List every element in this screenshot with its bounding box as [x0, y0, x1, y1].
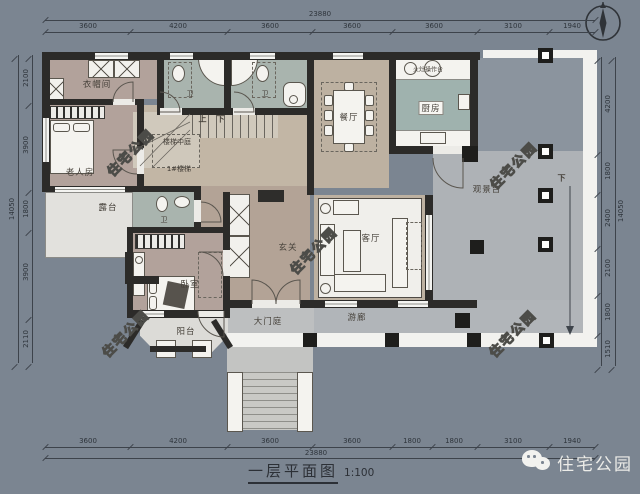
dim-tick [127, 29, 133, 35]
label-stair-down: 下 [217, 114, 226, 125]
north-arrow [586, 2, 620, 40]
deck-column [538, 188, 553, 203]
dim-line [45, 20, 595, 21]
deck-right-band [583, 50, 597, 347]
dining-chair [324, 125, 333, 136]
wall-bath1-left [157, 55, 164, 112]
label-deck-down: 下 [558, 173, 567, 184]
label-stair-up: 上 [199, 114, 208, 125]
dim-tick [546, 29, 552, 35]
dim-tick [474, 444, 480, 450]
dim-right-overall: 14050 [617, 200, 625, 222]
door-gap-cloakroom [113, 99, 135, 105]
dim-tick [11, 56, 17, 62]
deck-column [538, 237, 553, 252]
dim-tick [25, 230, 31, 236]
plant-icon [320, 283, 331, 294]
wall-bath1-bath2 [224, 55, 231, 112]
label-veranda: 游廊 [347, 311, 366, 323]
closet-hatch [48, 106, 105, 119]
door-gap-kitchen-deck [433, 146, 463, 154]
label-stair-id: 1#楼梯 [167, 164, 191, 174]
dim-tick [608, 367, 614, 373]
tv-console [258, 190, 284, 202]
dim-tick [25, 190, 31, 196]
drawing-title: 一层平面图 1:100 [248, 460, 374, 484]
dim-bottom-seg: 3100 [504, 437, 522, 445]
label-bath3: 卫 [161, 215, 168, 225]
terrace-floor [45, 192, 133, 258]
label-bedroom: 卧室 [180, 278, 199, 290]
dim-top-seg: 3600 [261, 22, 279, 30]
label-living: 客厅 [361, 232, 380, 244]
dim-bottom-seg: 1940 [563, 437, 581, 445]
dim-line [601, 57, 602, 366]
dim-left-seg: 3900 [22, 136, 30, 154]
dim-right-seg: 2100 [604, 259, 612, 277]
title-scale: 1:100 [344, 467, 374, 479]
entrance-steps [243, 372, 297, 430]
window-bath1 [170, 53, 193, 59]
corner-column [462, 146, 478, 162]
bedroom-dresser [135, 234, 185, 249]
dim-top-seg: 3600 [425, 22, 443, 30]
dim-bottom-seg: 1800 [445, 437, 463, 445]
sofa-bottom [334, 274, 386, 292]
steps-pedestal-left [227, 372, 243, 432]
dim-right-seg: 1510 [604, 340, 612, 358]
title-text: 一层平面图 [248, 460, 338, 484]
dim-line [18, 55, 19, 363]
dining-chair [344, 143, 354, 152]
dim-tick [592, 29, 598, 35]
window-dining [333, 53, 363, 59]
dim-tick [25, 56, 31, 62]
dim-line [45, 447, 595, 448]
door-gap-bath3 [194, 200, 201, 222]
bedroom-wardrobe [198, 252, 222, 298]
deck-column-solid [470, 240, 484, 254]
window-living-bay [426, 215, 432, 290]
dim-right-seg: 1800 [604, 303, 612, 321]
dim-top-overall: 23880 [309, 10, 331, 18]
toilet-icon [256, 65, 269, 82]
window-elder-south [55, 187, 125, 192]
dim-tick [389, 29, 395, 35]
label-terrace: 露台 [98, 201, 117, 213]
steps-landing [227, 347, 313, 372]
porch-column [385, 333, 399, 347]
label-elder-room: 老人房 [66, 166, 95, 178]
label-stair-atrium: 楼梯中庭 [163, 137, 191, 147]
dim-left-overall: 14050 [8, 198, 16, 220]
dining-chair [324, 95, 333, 106]
dim-line [32, 55, 33, 363]
wall-bath2-dining [307, 55, 314, 195]
armchair [333, 200, 359, 215]
dim-tick [25, 364, 31, 370]
steps-pedestal-right [297, 372, 313, 432]
plant-icon [320, 203, 331, 214]
door-gap-balcony [198, 311, 224, 317]
dim-tick [42, 29, 48, 35]
label-entrance-court: 大门庭 [254, 315, 283, 327]
dim-tick [429, 444, 435, 450]
door-gap-bath1 [160, 108, 182, 115]
pillow [53, 123, 70, 132]
porch-column-white [539, 333, 554, 348]
wardrobe-xbox [88, 60, 114, 78]
label-cloakroom: 衣帽间 [83, 78, 112, 90]
door-gap-bedroom [223, 250, 230, 276]
dim-tick [594, 367, 600, 373]
dining-chair [365, 95, 374, 106]
dim-line [615, 57, 616, 366]
deck-column [538, 48, 553, 63]
dim-left-seg: 2100 [22, 69, 30, 87]
dim-bottom-seg: 3600 [79, 437, 97, 445]
label-kitchen: 厨房 [418, 101, 443, 115]
window-cloakroom [95, 53, 128, 59]
dim-tick [42, 455, 48, 461]
dim-line [45, 458, 595, 459]
dim-bottom-overall: 23880 [305, 449, 327, 457]
dim-tick [42, 444, 48, 450]
dim-left-seg: 2110 [22, 330, 30, 348]
label-balcony: 阳台 [176, 325, 195, 337]
bay-window-seat [406, 222, 422, 270]
floorplan-canvas: 衣帽间 卫 卫 餐厅 厨房 火灶操作台 楼梯中庭 1#楼梯 上 下 老人房 露台… [0, 0, 640, 494]
pillow [73, 123, 90, 132]
dim-tick [474, 29, 480, 35]
porch-column [303, 333, 317, 347]
dim-bottom-seg: 1800 [403, 437, 421, 445]
stove-icon [420, 132, 446, 144]
dim-right-seg: 1800 [604, 162, 612, 180]
foyer-cabinet [228, 194, 250, 236]
dim-tick [224, 444, 230, 450]
dim-bottom-seg: 3600 [343, 437, 361, 445]
label-dining: 餐厅 [339, 111, 358, 123]
wall-balcony-bottom [150, 346, 206, 352]
dim-tick [389, 444, 395, 450]
label-bath1: 卫 [187, 89, 194, 99]
dining-chair [324, 110, 333, 121]
pillow [149, 296, 157, 310]
dim-tick [25, 317, 31, 323]
dim-right-seg: 2400 [604, 209, 612, 227]
dim-tick [42, 17, 48, 23]
dim-tick [309, 29, 315, 35]
door-gap-entry [252, 300, 300, 308]
brand-badge: 住宅公园 [522, 448, 633, 476]
dim-top-seg: 3600 [79, 22, 97, 30]
label-kitchen-counter: 火灶操作台 [413, 65, 443, 74]
dim-tick [127, 444, 133, 450]
brand-name: 住宅公园 [557, 450, 633, 475]
wall-kitchen-left [389, 57, 396, 154]
dim-top-seg: 1940 [563, 22, 581, 30]
dim-top-seg: 4200 [169, 22, 187, 30]
dim-line [45, 32, 595, 33]
label-foyer: 玄关 [278, 241, 297, 253]
window-bath2 [250, 53, 275, 59]
toilet-icon [156, 196, 168, 212]
dim-tick [25, 103, 31, 109]
dining-chair [365, 110, 374, 121]
wardrobe-xbox [114, 60, 140, 78]
deck-upper-floor [477, 58, 583, 151]
porch-column [467, 333, 481, 347]
dim-left-seg: 3900 [22, 263, 30, 281]
dim-right-seg: 4200 [604, 95, 612, 113]
dim-bottom-seg: 3600 [261, 437, 279, 445]
wechat-icon [522, 448, 552, 476]
window-elder-west [43, 118, 49, 162]
wall-bath3-top [127, 186, 201, 192]
basin-icon [135, 256, 143, 264]
dining-chair [365, 125, 374, 136]
dim-left-seg: 1800 [22, 200, 30, 218]
wall-terrace-corner-h [125, 276, 159, 284]
basin-icon [174, 196, 190, 208]
kitchen-side-sink [458, 94, 470, 110]
dim-bottom-seg: 4200 [169, 437, 187, 445]
deck-column [538, 144, 553, 159]
foyer-cabinet [228, 236, 250, 278]
dim-top-seg: 3600 [343, 22, 361, 30]
toilet-icon [172, 65, 185, 82]
drain-icon [289, 95, 298, 104]
window-living-south1 [325, 301, 357, 307]
door-gap-bath2 [233, 108, 255, 115]
coffee-table [343, 230, 361, 272]
veranda-column [455, 313, 470, 328]
dim-tick [608, 58, 614, 64]
window-living-south2 [398, 301, 428, 307]
dim-tick [224, 29, 230, 35]
dim-tick [592, 17, 598, 23]
wardrobe-xbox [48, 78, 64, 100]
dim-top-seg: 3100 [504, 22, 522, 30]
wall-bedroom-top [127, 227, 230, 233]
dim-tick [11, 364, 17, 370]
label-bath2: 卫 [262, 89, 269, 99]
